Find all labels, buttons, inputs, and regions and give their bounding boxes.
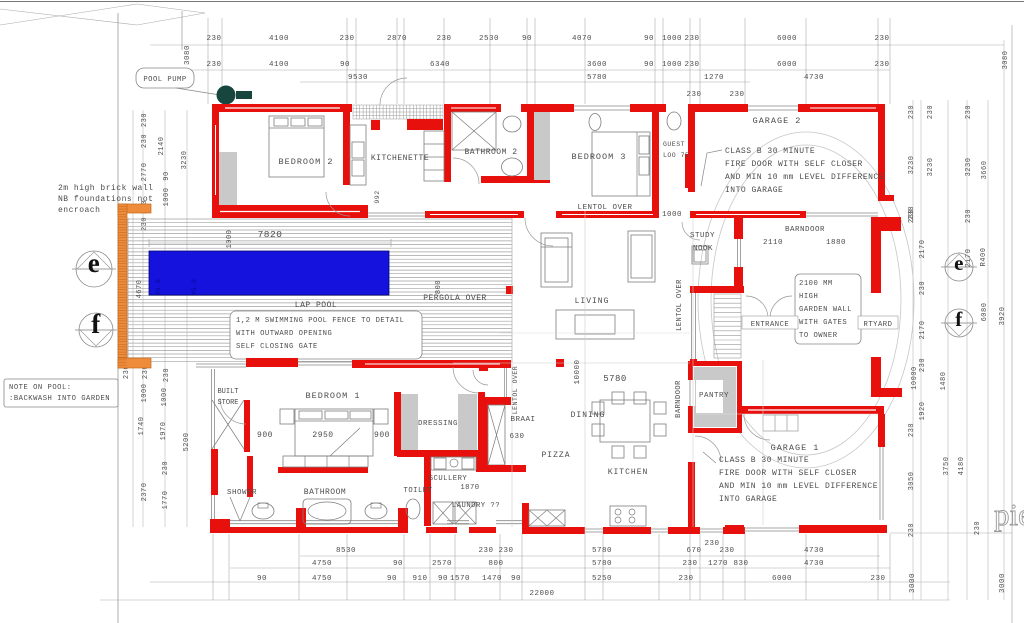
- svg-text:230: 230: [965, 209, 973, 223]
- svg-text:6000: 6000: [772, 575, 792, 583]
- svg-text:2110: 2110: [763, 239, 783, 247]
- svg-text:3080: 3080: [184, 45, 192, 65]
- svg-text:1470: 1470: [482, 575, 502, 583]
- svg-text:900: 900: [257, 431, 273, 440]
- svg-text:230: 230: [141, 134, 149, 148]
- svg-text:9530: 9530: [348, 74, 368, 82]
- svg-text:INTO GARAGE: INTO GARAGE: [719, 495, 777, 504]
- svg-text:992: 992: [374, 190, 381, 203]
- svg-text:TOILET: TOILET: [404, 487, 433, 495]
- svg-text:1740: 1740: [138, 417, 146, 436]
- svg-text:4750: 4750: [312, 560, 332, 568]
- svg-text:WITH OUTWARD OPENING: WITH OUTWARD OPENING: [236, 330, 332, 338]
- svg-text:4180: 4180: [958, 457, 966, 476]
- svg-text:BATHROOM: BATHROOM: [304, 488, 346, 497]
- svg-text:SHOWER: SHOWER: [227, 489, 257, 497]
- svg-text:BATHROOM 2: BATHROOM 2: [464, 148, 517, 157]
- svg-text:PERGOLA OVER: PERGOLA OVER: [423, 294, 487, 303]
- svg-text:4100: 4100: [269, 35, 289, 43]
- svg-text:800: 800: [488, 560, 503, 568]
- svg-text:LENTOL OVER: LENTOL OVER: [676, 279, 684, 331]
- svg-text:LOO 75: LOO 75: [663, 152, 689, 159]
- svg-text:230: 230: [686, 91, 701, 99]
- svg-text:230: 230: [478, 547, 493, 555]
- svg-text:RTYARD: RTYARD: [864, 321, 893, 329]
- svg-text:90: 90: [644, 61, 654, 69]
- svg-text:4070: 4070: [572, 35, 592, 43]
- svg-text:2770: 2770: [141, 163, 149, 182]
- svg-text:SCULLERY: SCULLERY: [429, 475, 468, 483]
- svg-text:2170: 2170: [965, 249, 973, 268]
- svg-text:TO OWNER: TO OWNER: [799, 332, 838, 340]
- svg-text:1770: 1770: [162, 491, 170, 510]
- svg-text:1000: 1000: [163, 188, 171, 207]
- svg-text:BEDROOM 3: BEDROOM 3: [572, 152, 627, 162]
- svg-text:230: 230: [870, 575, 885, 583]
- svg-text:4750: 4750: [312, 575, 332, 583]
- svg-text:8530: 8530: [336, 547, 356, 555]
- svg-text:230: 230: [704, 540, 719, 548]
- svg-text:230: 230: [908, 105, 916, 119]
- svg-text:2170: 2170: [919, 240, 927, 259]
- svg-text:230: 230: [141, 113, 149, 127]
- svg-text:5200: 5200: [183, 433, 191, 452]
- svg-text:6000: 6000: [777, 61, 797, 69]
- svg-text:GARDEN WALL: GARDEN WALL: [799, 306, 852, 314]
- svg-text:BARNDOOR: BARNDOOR: [675, 380, 683, 418]
- svg-text:GUEST: GUEST: [663, 141, 685, 148]
- svg-text:R400: R400: [980, 248, 988, 267]
- svg-text:230: 230: [874, 35, 889, 43]
- svg-text:1920: 1920: [919, 402, 927, 421]
- svg-text:90: 90: [522, 35, 532, 43]
- svg-text:3080: 3080: [1002, 51, 1010, 70]
- svg-text:230: 230: [974, 521, 982, 535]
- svg-text:AND MIN 10 mm LEVEL DIFFERENCE: AND MIN 10 mm LEVEL DIFFERENCE: [719, 482, 878, 491]
- svg-text:230: 230: [498, 547, 513, 555]
- svg-text:45.0: 45.0: [191, 279, 198, 295]
- svg-text:DINING: DINING: [571, 411, 606, 420]
- svg-text:2530: 2530: [479, 35, 499, 43]
- svg-text:45.0: 45.0: [155, 279, 162, 295]
- svg-text:1270: 1270: [704, 74, 724, 82]
- svg-text:4730: 4730: [804, 547, 824, 555]
- svg-text:CLASS B 30 MINUTE: CLASS B 30 MINUTE: [725, 147, 815, 156]
- svg-text:230: 230: [965, 105, 973, 119]
- svg-text:830: 830: [733, 560, 748, 568]
- svg-text:1000: 1000: [161, 388, 169, 407]
- svg-text:230: 230: [436, 35, 451, 43]
- svg-text:BARNDOOR: BARNDOOR: [785, 226, 825, 234]
- svg-text:230: 230: [908, 423, 916, 437]
- svg-text:230: 230: [684, 35, 699, 43]
- svg-text:230: 230: [719, 547, 734, 555]
- svg-text:1270: 1270: [708, 560, 728, 568]
- svg-text:2570: 2570: [432, 560, 452, 568]
- svg-text:2870: 2870: [387, 35, 407, 43]
- svg-text:2100 MM: 2100 MM: [799, 280, 833, 288]
- svg-text:1880: 1880: [826, 239, 846, 247]
- svg-text:4730: 4730: [804, 560, 824, 568]
- svg-text:PIZZA: PIZZA: [541, 451, 570, 460]
- svg-text:630: 630: [509, 433, 524, 441]
- svg-text:3750: 3750: [943, 457, 951, 476]
- svg-text:encroach: encroach: [58, 206, 100, 215]
- svg-text:3230: 3230: [965, 158, 973, 177]
- svg-text::BACKWASH INTO GARDEN: :BACKWASH INTO GARDEN: [9, 395, 110, 403]
- svg-text:6340: 6340: [430, 61, 450, 69]
- svg-text:POOL PUMP: POOL PUMP: [143, 76, 186, 84]
- svg-text:5780: 5780: [592, 547, 612, 555]
- svg-text:5780: 5780: [603, 374, 627, 384]
- svg-text:3000: 3000: [909, 573, 917, 593]
- svg-text:LENTOL OVER: LENTOL OVER: [512, 366, 519, 414]
- svg-text:BEDROOM 1: BEDROOM 1: [306, 391, 361, 401]
- svg-text:HIGH: HIGH: [799, 293, 818, 301]
- svg-text:e: e: [88, 248, 100, 278]
- svg-text:STUDY: STUDY: [690, 232, 715, 240]
- svg-text:INTO GARAGE: INTO GARAGE: [725, 186, 783, 195]
- svg-text:LAUNDRY ??: LAUNDRY ??: [452, 502, 500, 510]
- svg-text:GARAGE 1: GARAGE 1: [771, 443, 820, 453]
- svg-text:LIVING: LIVING: [575, 297, 610, 306]
- svg-text:90: 90: [340, 61, 350, 69]
- svg-text:AND MIN 10 mm LEVEL DIFFERENCE: AND MIN 10 mm LEVEL DIFFERENCE: [725, 173, 884, 182]
- svg-text:230: 230: [162, 461, 170, 475]
- svg-text:230: 230: [678, 575, 693, 583]
- svg-text:1000: 1000: [141, 384, 149, 403]
- svg-text:BUILT: BUILT: [217, 388, 238, 396]
- svg-text:10000: 10000: [911, 366, 919, 390]
- svg-text:FIRE DOOR WITH SELF CLOSER: FIRE DOOR WITH SELF CLOSER: [719, 469, 857, 478]
- svg-text:1480: 1480: [940, 372, 948, 391]
- svg-text:230: 230: [908, 523, 916, 537]
- svg-text:2170: 2170: [919, 321, 927, 340]
- svg-text:1000: 1000: [662, 61, 682, 69]
- svg-text:4670: 4670: [136, 280, 144, 299]
- svg-text:230: 230: [339, 35, 354, 43]
- svg-text:3660: 3660: [981, 161, 989, 180]
- svg-text:FIRE DOOR WITH SELF CLOSER: FIRE DOOR WITH SELF CLOSER: [725, 160, 863, 169]
- svg-text:90: 90: [257, 575, 267, 583]
- svg-text:e: e: [954, 251, 964, 275]
- svg-text:NOTE ON POOL:: NOTE ON POOL:: [9, 384, 72, 392]
- svg-text:90: 90: [163, 171, 171, 180]
- svg-text:4100: 4100: [269, 61, 289, 69]
- svg-text:f: f: [955, 307, 963, 331]
- svg-text:910: 910: [412, 575, 427, 583]
- svg-text:PANTRY: PANTRY: [699, 392, 729, 400]
- svg-text:230: 230: [927, 105, 935, 119]
- svg-text:3000: 3000: [999, 573, 1007, 593]
- svg-text:6000: 6000: [777, 35, 797, 43]
- svg-text:2950: 2950: [312, 431, 333, 440]
- svg-text:230: 230: [206, 35, 221, 43]
- svg-text:6080: 6080: [981, 303, 989, 322]
- svg-text:3050: 3050: [908, 472, 916, 491]
- svg-text:90: 90: [393, 560, 403, 568]
- svg-text:pie: pie: [994, 497, 1024, 532]
- svg-text:GARAGE 2: GARAGE 2: [753, 116, 802, 126]
- svg-text:STORE: STORE: [217, 399, 238, 407]
- svg-text:230: 230: [682, 560, 697, 568]
- svg-text:230: 230: [919, 281, 927, 295]
- svg-text:3600: 3600: [587, 61, 607, 69]
- svg-text:3230: 3230: [908, 156, 916, 175]
- svg-text:DRESSING: DRESSING: [418, 420, 458, 428]
- svg-text:BRAAI: BRAAI: [510, 416, 535, 424]
- svg-text:KITCHENETTE: KITCHENETTE: [371, 154, 429, 163]
- svg-text:1970: 1970: [160, 422, 168, 441]
- svg-text:2140: 2140: [158, 137, 166, 156]
- svg-text:1000: 1000: [662, 35, 682, 43]
- svg-text:90: 90: [387, 575, 397, 583]
- svg-text:670: 670: [686, 547, 701, 555]
- svg-text:NOOK: NOOK: [693, 245, 713, 253]
- svg-text:NB foundations not: NB foundations not: [58, 195, 153, 204]
- svg-text:230: 230: [874, 61, 889, 69]
- svg-text:CLASS B 30 MINUTE: CLASS B 30 MINUTE: [719, 456, 809, 465]
- svg-text:WITH GATES: WITH GATES: [799, 319, 847, 327]
- svg-text:230: 230: [684, 61, 699, 69]
- svg-text:230: 230: [206, 61, 221, 69]
- svg-text:1000: 1000: [662, 211, 682, 219]
- svg-text:230: 230: [163, 368, 171, 382]
- svg-text:22000: 22000: [529, 590, 554, 598]
- svg-text:3230: 3230: [927, 158, 935, 177]
- svg-text:3920: 3920: [999, 307, 1007, 326]
- svg-text:3230: 3230: [181, 151, 189, 170]
- svg-text:f: f: [91, 309, 101, 339]
- svg-text:5780: 5780: [587, 74, 607, 82]
- svg-text:5250: 5250: [592, 575, 612, 583]
- svg-text:90: 90: [644, 35, 654, 43]
- svg-text:ENTRANCE: ENTRANCE: [751, 321, 790, 329]
- svg-text:1870: 1870: [460, 484, 479, 492]
- svg-text:230: 230: [919, 358, 927, 372]
- svg-text:800: 800: [435, 280, 443, 294]
- svg-text:230: 230: [729, 91, 744, 99]
- svg-text:4730: 4730: [804, 74, 824, 82]
- svg-text:2370: 2370: [141, 483, 149, 502]
- svg-text:90: 90: [438, 575, 448, 583]
- svg-text:5780: 5780: [592, 560, 612, 568]
- svg-text:1,2 M SWIMMING POOL FENCE TO D: 1,2 M SWIMMING POOL FENCE TO DETAIL: [236, 317, 404, 325]
- svg-text:BEDROOM 2: BEDROOM 2: [279, 157, 334, 167]
- svg-text:SELF CLOSING GATE: SELF CLOSING GATE: [236, 343, 318, 351]
- svg-text:90: 90: [511, 575, 521, 583]
- svg-text:7820: 7820: [258, 229, 283, 240]
- svg-text:1000: 1000: [226, 230, 234, 249]
- svg-text:LENTOL OVER: LENTOL OVER: [577, 204, 632, 212]
- svg-text:2m high brick wall: 2m high brick wall: [58, 184, 153, 193]
- svg-text:230: 230: [908, 206, 916, 220]
- svg-text:1570: 1570: [450, 575, 470, 583]
- svg-text:KITCHEN: KITCHEN: [608, 468, 649, 477]
- svg-text:LAP POOL: LAP POOL: [295, 301, 337, 310]
- svg-text:900: 900: [374, 431, 390, 440]
- svg-text:10000: 10000: [574, 359, 582, 384]
